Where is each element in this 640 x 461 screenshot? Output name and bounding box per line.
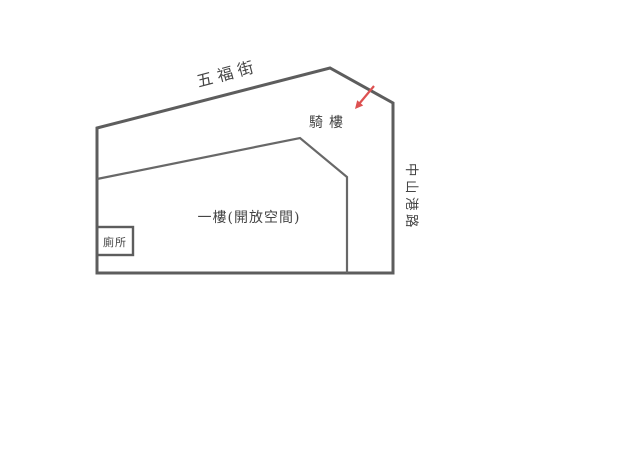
floor-plan-svg: 五福街 騎樓 一樓(開放空間) 廁所 中山港路 — [0, 0, 640, 461]
street-label-right: 中山港路 — [403, 163, 419, 231]
floor-plan-canvas: 五福街 騎樓 一樓(開放空間) 廁所 中山港路 — [0, 0, 640, 461]
arcade-boundary-line — [97, 138, 347, 273]
toilet-label: 廁所 — [103, 235, 127, 249]
arcade-label: 騎樓 — [309, 115, 349, 131]
first-floor-label: 一樓(開放空間) — [198, 210, 301, 226]
street-label-top: 五福街 — [195, 56, 261, 91]
